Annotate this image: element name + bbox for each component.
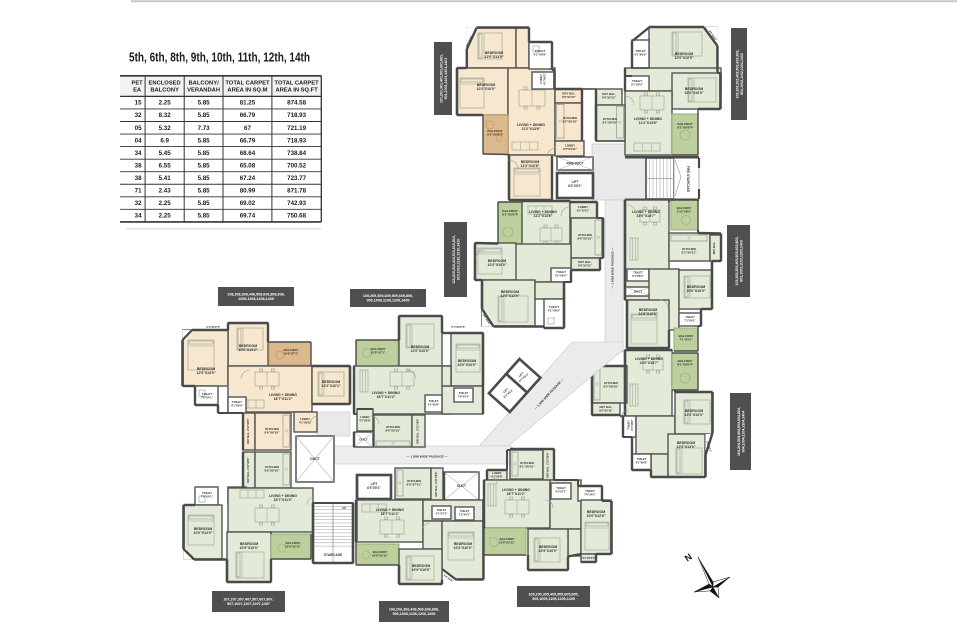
svg-text:8'0"X2'11": 8'0"X2'11" <box>599 408 613 412</box>
svg-text:10'9"X2'11": 10'9"X2'11" <box>372 554 389 558</box>
svg-text:10'2"X10'0": 10'2"X10'0" <box>685 91 704 95</box>
svg-text:32: 32 <box>135 112 142 119</box>
svg-text:12'6"X10'0": 12'6"X10'0" <box>639 312 658 316</box>
svg-text:68.64: 68.64 <box>240 150 256 157</box>
svg-text:18'7"X11'2": 18'7"X11'2" <box>274 498 293 502</box>
svg-text:8'1"X6'8"P: 8'1"X6'8"P <box>678 363 693 367</box>
svg-text:71: 71 <box>135 188 142 195</box>
svg-text:4'1"X6'8": 4'1"X6'8" <box>359 418 371 422</box>
svg-text:2.25: 2.25 <box>159 200 172 207</box>
svg-text:8'1"X8'10": 8'1"X8'10" <box>602 121 618 125</box>
svg-text:6'3"X5'1": 6'3"X5'1" <box>568 184 582 188</box>
svg-text:05: 05 <box>135 125 142 132</box>
svg-text:7'1"X4'1": 7'1"X4'1" <box>684 318 696 322</box>
svg-text:5.85: 5.85 <box>198 100 211 107</box>
svg-text:— 1.50M WIDE PASSAGE —: — 1.50M WIDE PASSAGE — <box>611 246 615 288</box>
svg-text:12'0"X13'0": 12'0"X13'0" <box>197 371 216 375</box>
svg-text:81.25: 81.25 <box>240 100 256 107</box>
svg-text:10'9"X2'11": 10'9"X2'11" <box>285 545 302 549</box>
svg-text:738.84: 738.84 <box>287 150 306 157</box>
svg-text:10'0"X18'7": 10'0"X18'7" <box>637 214 656 218</box>
svg-text:18'7"X11'2": 18'7"X11'2" <box>377 395 396 399</box>
svg-text:4'1"X6'9": 4'1"X6'9" <box>548 309 561 313</box>
svg-text:VERANDAH: VERANDAH <box>187 87 220 93</box>
svg-text:8.32: 8.32 <box>159 112 172 119</box>
svg-text:2.25: 2.25 <box>159 100 172 107</box>
svg-text:DUCT: DUCT <box>359 438 367 442</box>
svg-text:8'0"X2'11": 8'0"X2'11" <box>578 264 593 268</box>
svg-text:5'11"X5'2"P: 5'11"X5'2"P <box>581 556 595 560</box>
svg-text:5.85: 5.85 <box>198 137 211 144</box>
svg-text:8'2"X8'10": 8'2"X8'10" <box>603 385 619 389</box>
svg-text:8'6"X8'10": 8'6"X8'10" <box>264 469 280 473</box>
svg-text:TOTAL CARPET: TOTAL CARPET <box>275 80 320 86</box>
svg-text:8'6"X7'11": 8'6"X7'11" <box>407 483 422 487</box>
svg-text:8'0"X2'11": 8'0"X2'11" <box>562 95 577 99</box>
svg-text:32: 32 <box>135 200 142 207</box>
svg-text:8'1"X6'8"P: 8'1"X6'8"P <box>487 133 502 137</box>
svg-text:38: 38 <box>135 175 142 182</box>
svg-text:7'6"X4'1": 7'6"X4'1" <box>584 492 596 496</box>
svg-text:PET: PET <box>131 80 143 86</box>
svg-text:ENCLOSED: ENCLOSED <box>149 80 181 86</box>
svg-text:905,1005,1105,1205,1405: 905,1005,1105,1205,1405 <box>532 597 575 601</box>
svg-text:901,1001,1101,1201,1401: 901,1001,1101,1201,1401 <box>444 58 448 100</box>
svg-text:5'1"X5'2"P: 5'1"X5'2"P <box>206 325 220 329</box>
svg-text:5.41: 5.41 <box>159 175 172 182</box>
svg-text:8'1"X8'10": 8'1"X8'10" <box>519 465 535 469</box>
svg-text:5.85: 5.85 <box>198 162 211 169</box>
svg-text:4'1"X6'2": 4'1"X6'2" <box>630 418 634 430</box>
svg-text:38: 38 <box>135 162 142 169</box>
svg-text:12'0"X10'0": 12'0"X10'0" <box>411 349 430 353</box>
svg-text:4'1"X6'8": 4'1"X6'8" <box>491 474 503 478</box>
svg-text:BALCONY/: BALCONY/ <box>188 80 219 86</box>
svg-text:718.93: 718.93 <box>287 137 306 144</box>
svg-text:DUCT: DUCT <box>457 484 466 488</box>
svg-text:7'6"X4'1": 7'6"X4'1" <box>458 394 470 398</box>
svg-text:18'7"X11'2": 18'7"X11'2" <box>274 397 293 401</box>
svg-text:7.73: 7.73 <box>198 125 211 132</box>
svg-text:12'0"X13'0": 12'0"X13'0" <box>501 294 520 298</box>
svg-text:2.43: 2.43 <box>159 188 172 195</box>
svg-text:10'0"X7'1": 10'0"X7'1" <box>284 352 299 356</box>
svg-text:721.19: 721.19 <box>287 125 306 132</box>
svg-text:102,202,302,402,502,602,802,: 102,202,302,402,502,602,802, <box>735 50 739 99</box>
svg-text:4'1"X6'9": 4'1"X6'9" <box>634 53 647 57</box>
svg-text:4'1"X6'9": 4'1"X6'9" <box>636 460 648 464</box>
svg-text:6.55: 6.55 <box>159 162 172 169</box>
svg-text:8'1"X6'8"P: 8'1"X6'8"P <box>502 213 517 217</box>
svg-text:10'0"X7'1": 10'0"X7'1" <box>371 351 386 355</box>
svg-text:12'0"X10'0": 12'0"X10'0" <box>675 56 694 60</box>
svg-text:18'7"X11'2": 18'7"X11'2" <box>381 512 400 516</box>
svg-text:9'1"X4'1": 9'1"X4'1" <box>577 209 590 213</box>
svg-text:5.85: 5.85 <box>198 112 211 119</box>
svg-text:5.85: 5.85 <box>198 150 211 157</box>
svg-text:906,1006,1106,1206,1406: 906,1006,1106,1206,1406 <box>393 612 436 616</box>
svg-text:10'0"X10'0": 10'0"X10'0" <box>687 289 706 293</box>
svg-text:DRY BAL. 2'11"X8'6": DRY BAL. 2'11"X8'6" <box>246 418 250 444</box>
svg-text:8'6"X8'10": 8'6"X8'10" <box>385 429 401 433</box>
svg-text:10'2"X10'0": 10'2"X10'0" <box>685 413 704 417</box>
svg-text:10'0"X12'6": 10'0"X12'6" <box>587 514 606 518</box>
svg-text:DUCT: DUCT <box>634 290 642 294</box>
svg-text:6.9: 6.9 <box>160 137 169 144</box>
svg-text:FIRE STAIRCASE: FIRE STAIRCASE <box>686 166 690 192</box>
svg-text:11'2"X10'8": 11'2"X10'8" <box>521 164 540 168</box>
svg-text:907,1007,1107,1207,1407: 907,1007,1107,1207,1407 <box>227 602 270 606</box>
svg-text:5.32: 5.32 <box>159 125 172 132</box>
svg-text:69.02: 69.02 <box>240 200 256 207</box>
svg-text:9'2"X3'11": 9'2"X3'11" <box>563 147 578 151</box>
svg-text:718.93: 718.93 <box>287 112 306 119</box>
svg-text:107,207,307,407,507,607,807,: 107,207,307,407,507,607,807, <box>223 598 273 602</box>
svg-text:10'0"X12'0": 10'0"X12'0" <box>194 531 213 535</box>
svg-text:8'2"X8'10": 8'2"X8'10" <box>562 120 578 124</box>
svg-text:TOTAL CARPET: TOTAL CARPET <box>225 80 270 86</box>
svg-text:69.74: 69.74 <box>240 213 256 220</box>
svg-text:7'6"X4'1": 7'6"X4'1" <box>201 494 214 498</box>
svg-text:109,209,309,409,509,609,809,: 109,209,309,409,509,609,809, <box>363 294 413 298</box>
svg-text:UP: UP <box>342 506 346 510</box>
svg-text:4'1"X6'2": 4'1"X6'2" <box>542 72 546 85</box>
svg-text:AREA IN SQ.M: AREA IN SQ.M <box>227 87 267 93</box>
svg-text:10'2"X10'1": 10'2"X10'1" <box>322 384 341 388</box>
svg-text:8'6"X8'10": 8'6"X8'10" <box>264 431 280 435</box>
svg-text:742.93: 742.93 <box>287 200 306 207</box>
svg-text:8'1"X6'8"P: 8'1"X6'8"P <box>677 126 692 130</box>
svg-text:750.68: 750.68 <box>287 213 306 220</box>
svg-text:910,1010,1110,1210,1410: 910,1010,1110,1210,1410 <box>457 239 461 281</box>
svg-text:904,1004,1104,1204,1404: 904,1004,1104,1204,1404 <box>742 411 746 453</box>
svg-text:11'2"X13'6": 11'2"X13'6" <box>534 214 553 218</box>
svg-text:723.77: 723.77 <box>287 175 306 182</box>
svg-text:4'1"X7'1": 4'1"X7'1" <box>555 489 567 493</box>
svg-text:DRY BAL. 2'11"X8'6": DRY BAL. 2'11"X8'6" <box>434 471 438 497</box>
svg-text:66.79: 66.79 <box>240 137 256 144</box>
svg-text:8'0"X2'11": 8'0"X2'11" <box>602 96 617 100</box>
svg-text:10'0"X10'2": 10'0"X10'2" <box>239 348 258 352</box>
svg-text:FIRE DUCT: FIRE DUCT <box>567 162 584 166</box>
svg-text:5'1"X6'2": 5'1"X6'2" <box>555 273 568 277</box>
svg-text:80.99: 80.99 <box>240 188 256 195</box>
svg-text:8'1"X5'11": 8'1"X5'11" <box>682 251 697 255</box>
svg-text:18'7"X11'2": 18'7"X11'2" <box>507 492 526 496</box>
svg-text:EA: EA <box>133 87 142 93</box>
svg-text:DRY BAL. 2'11"X8'6": DRY BAL. 2'11"X8'6" <box>246 457 250 483</box>
svg-text:5'10"X6'3": 5'10"X6'3" <box>677 210 692 214</box>
svg-text:7'2"X4'1": 7'2"X4'1" <box>459 512 471 516</box>
svg-text:700.52: 700.52 <box>287 162 306 169</box>
svg-text:— 1.50M WIDE PASSAGE —: — 1.50M WIDE PASSAGE — <box>406 455 448 459</box>
svg-text:5.85: 5.85 <box>198 188 211 195</box>
svg-text:10'0"X18'7": 10'0"X18'7" <box>640 361 659 365</box>
svg-text:11'2"X13'6": 11'2"X13'6" <box>639 121 658 125</box>
svg-text:67.24: 67.24 <box>240 175 256 182</box>
svg-text:DRY BAL.: DRY BAL. <box>712 241 716 254</box>
svg-text:902,1002,1102,1302,1402: 902,1002,1102,1302,1402 <box>740 53 744 95</box>
svg-text:4'1"X6'9": 4'1"X6'9" <box>428 402 440 406</box>
svg-text:5'1"X6'2": 5'1"X6'2" <box>632 274 644 278</box>
svg-text:10'2"X10'0": 10'2"X10'0" <box>488 263 507 267</box>
svg-text:5th, 6th, 8th, 9th, 10th, 11th: 5th, 6th, 8th, 9th, 10th, 11th, 12th, 14… <box>129 50 310 65</box>
svg-text:15: 15 <box>135 100 142 107</box>
svg-text:6'3"X5'1": 6'3"X5'1" <box>367 486 381 490</box>
svg-text:BALCONY: BALCONY <box>150 87 179 93</box>
svg-text:1008,1108,1208,1408: 1008,1108,1208,1408 <box>238 297 274 301</box>
svg-text:5'1"X5'2"P: 5'1"X5'2"P <box>451 325 465 329</box>
svg-text:2.25: 2.25 <box>159 213 172 220</box>
svg-text:7'1"X4'1": 7'1"X4'1" <box>680 338 694 342</box>
svg-text:5.45: 5.45 <box>159 150 172 157</box>
svg-text:DRY BAL. 2'11"X8'6": DRY BAL. 2'11"X8'6" <box>416 418 420 444</box>
svg-text:DRY BAL. 2'11"X8'6": DRY BAL. 2'11"X8'6" <box>546 452 550 478</box>
svg-text:110,210,310,410,510,610,810,: 110,210,310,410,510,610,810, <box>452 235 456 284</box>
svg-text:11'2"X13'6": 11'2"X13'6" <box>522 127 541 131</box>
svg-text:12'0"X13'0": 12'0"X13'0" <box>485 55 504 59</box>
svg-text:5.85: 5.85 <box>198 213 211 220</box>
svg-text:65.08: 65.08 <box>240 162 256 169</box>
svg-text:101,201,301,401,501,601,801,: 101,201,301,401,501,601,801, <box>439 54 443 103</box>
svg-text:DUCT: DUCT <box>310 457 320 461</box>
svg-text:4'1"X6'9": 4'1"X6'9" <box>231 403 244 407</box>
svg-text:104,204,304,404,504,604,804,: 104,204,304,404,504,604,804, <box>737 407 741 456</box>
svg-text:4'1"X7'1": 4'1"X7'1" <box>436 511 448 515</box>
svg-text:909,1009,1109,1209,1409: 909,1009,1109,1209,1409 <box>367 299 410 303</box>
svg-text:10'0"X10'0": 10'0"X10'0" <box>458 363 477 367</box>
svg-text:5'1"X6'2": 5'1"X6'2" <box>631 82 644 86</box>
svg-text:34: 34 <box>135 213 142 220</box>
svg-text:AREA IN SQ.FT: AREA IN SQ.FT <box>275 87 318 93</box>
svg-text:10'2"X10'0": 10'2"X10'0" <box>454 546 473 550</box>
svg-text:66.79: 66.79 <box>240 112 256 119</box>
svg-text:106,206,306,406,506,606,806,: 106,206,306,406,506,606,806, <box>389 608 439 612</box>
svg-text:10'2"X10'0": 10'2"X10'0" <box>477 87 496 91</box>
svg-text:103,203,303,403,503,603,803,: 103,203,303,403,503,603,803, <box>735 237 739 286</box>
svg-text:12'0"X13'0": 12'0"X13'0" <box>677 445 696 449</box>
svg-text:108,208,308,408,508,608,808,90: 108,208,308,408,508,608,808,908, <box>227 293 284 297</box>
svg-text:67: 67 <box>244 125 251 132</box>
svg-text:903,1003,1103,1203,1403: 903,1003,1103,1203,1403 <box>740 240 744 282</box>
svg-text:7'6"X4'1": 7'6"X4'1" <box>201 395 214 399</box>
svg-text:5.85: 5.85 <box>198 175 211 182</box>
svg-text:4'1"X6'9": 4'1"X6'9" <box>534 53 548 57</box>
svg-text:871.78: 871.78 <box>287 188 306 195</box>
svg-text:10'9"X10'0": 10'9"X10'0" <box>539 549 558 553</box>
svg-text:10'9"X10'0": 10'9"X10'0" <box>412 568 431 572</box>
svg-text:105,205,305,405,505,605,805,: 105,205,305,405,505,605,805, <box>528 593 578 597</box>
svg-text:874.58: 874.58 <box>287 100 306 107</box>
svg-text:5.85: 5.85 <box>198 200 211 207</box>
svg-text:04: 04 <box>135 137 142 144</box>
svg-text:10'9"X10'0": 10'9"X10'0" <box>240 546 259 550</box>
svg-text:10'9"X2'11": 10'9"X2'11" <box>499 541 516 545</box>
svg-text:8'6"X8'10": 8'6"X8'10" <box>577 237 593 241</box>
svg-text:34: 34 <box>135 150 142 157</box>
